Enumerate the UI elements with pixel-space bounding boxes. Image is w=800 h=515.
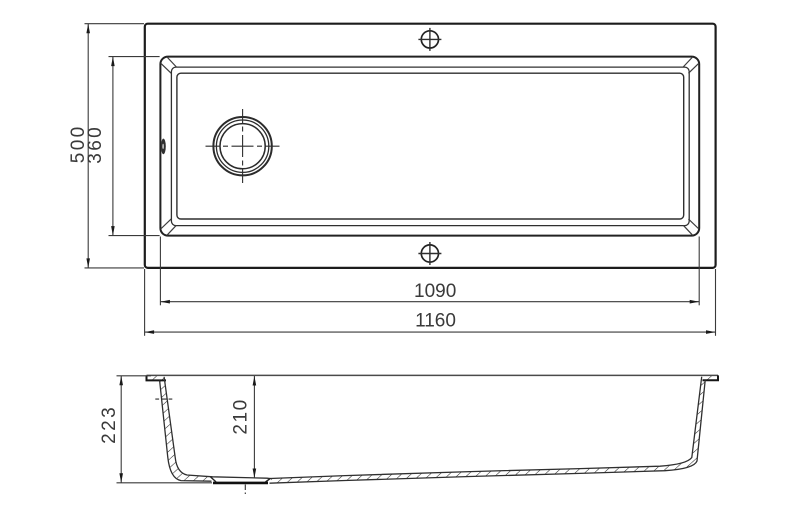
svg-text:1090: 1090 — [414, 281, 456, 302]
svg-text:360: 360 — [85, 125, 106, 164]
svg-text:223: 223 — [99, 405, 120, 444]
svg-text:210: 210 — [231, 398, 252, 435]
svg-text:1160: 1160 — [415, 311, 456, 332]
